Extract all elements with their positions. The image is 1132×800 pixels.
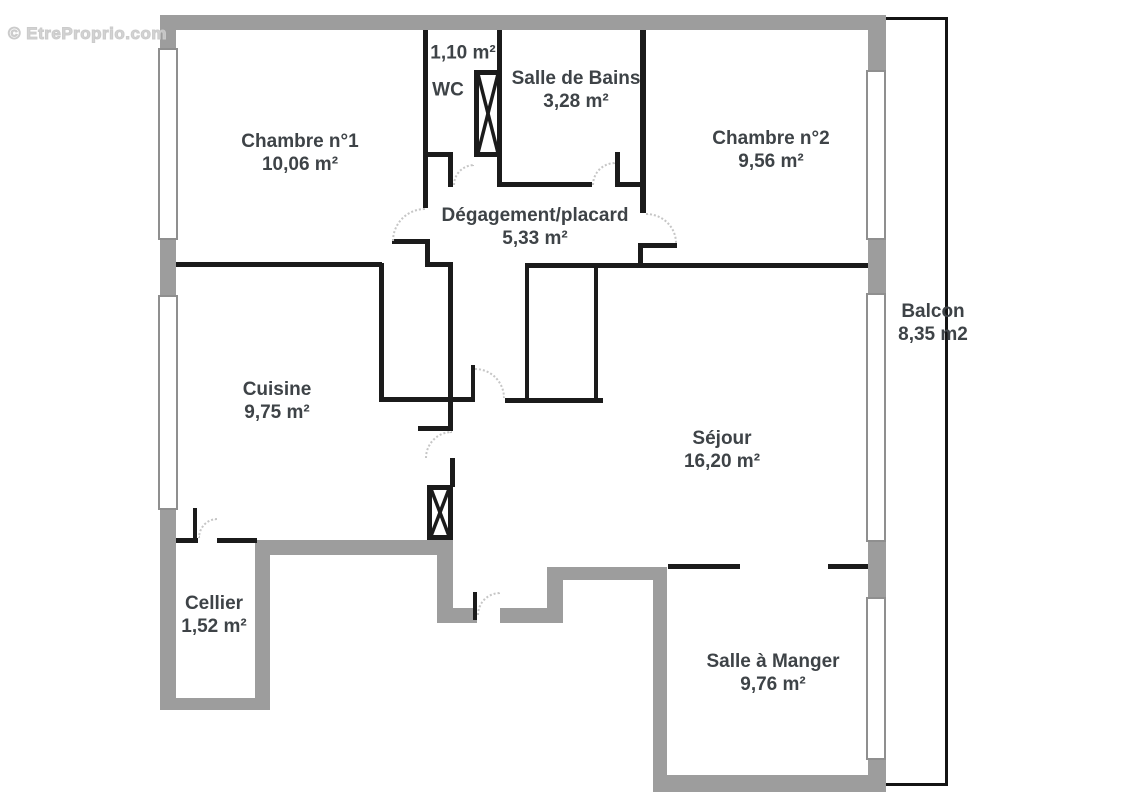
door-arc [475,368,505,398]
room-area: 10,06 m² [241,153,358,176]
wall-segment [668,564,740,569]
wall-segment [868,30,886,70]
wall-segment [525,267,529,398]
room-area: 8,35 m2 [898,323,968,346]
room-label-salle-a-manger: Salle à Manger 9,76 m² [706,650,839,696]
room-area: 9,56 m² [712,150,829,173]
wall-segment [437,608,477,623]
watermark: © EtreProprio.com [8,24,167,44]
room-label-sejour: Séjour 16,20 m² [684,427,760,473]
balcony-outline [945,17,948,786]
wall-segment [638,243,677,248]
room-label-balcon: Balcon 8,35 m2 [898,300,968,346]
room-name: Cuisine [243,378,312,401]
wall-segment [379,263,384,399]
room-name: Séjour [684,427,760,450]
room-area: 1,10 m² [430,42,495,65]
door-arc [453,164,474,185]
ventilation-shaft [474,70,502,157]
room-label-chambre-1: Chambre n°1 10,06 m² [241,130,358,176]
room-label-wc-area: 1,10 m² [430,42,495,65]
wall-segment [473,592,477,620]
window [866,293,886,542]
room-label-chambre-2: Chambre n°2 9,56 m² [712,127,829,173]
wall-segment [160,240,176,295]
window [866,597,886,760]
door-arc [592,162,615,185]
room-label-cuisine: Cuisine 9,75 m² [243,378,312,424]
room-name: Cellier [181,592,246,615]
wall-segment [868,240,886,293]
room-area: 1,52 m² [181,615,246,638]
wall-segment [448,263,453,428]
window [158,48,178,240]
room-area: 9,75 m² [243,401,312,424]
wall-segment [653,578,667,787]
wall-segment [176,262,382,267]
wall-segment [497,182,592,187]
wall-segment [255,540,270,710]
wall-segment [505,398,603,403]
balcony-outline [886,17,948,20]
room-name: Balcon [898,300,968,323]
wall-segment [868,758,886,792]
room-area: 16,20 m² [684,450,760,473]
door-arc [477,592,500,615]
wall-segment [594,267,598,398]
wall-segment [193,508,197,540]
room-name: Dégagement/placard [442,204,629,227]
ventilation-shaft [427,485,453,540]
door-arc [198,518,217,538]
room-label-salle-de-bains: Salle de Bains 3,28 m² [512,67,641,113]
wall-segment [379,397,475,402]
floor-plan: © EtreProprio.com [0,0,1132,800]
window [158,295,178,510]
room-name: Salle à Manger [706,650,839,673]
wall-segment [425,239,430,267]
wall-segment [547,567,563,612]
room-name: WC [432,79,464,102]
wall-segment [450,458,455,487]
room-area: 3,28 m² [512,90,641,113]
room-label-degagement: Dégagement/placard 5,33 m² [442,204,629,250]
wall-segment [828,564,868,569]
wall-segment [525,263,868,268]
wall-segment [217,538,257,543]
room-name: Chambre n°1 [241,130,358,153]
wall-segment [640,30,646,213]
window [866,70,886,240]
room-name: Chambre n°2 [712,127,829,150]
wall-segment [423,30,428,208]
room-area: 9,76 m² [706,673,839,696]
wall-segment [563,567,667,580]
room-area: 5,33 m² [442,227,629,250]
door-arc [392,208,425,241]
room-label-cellier: Cellier 1,52 m² [181,592,246,638]
room-label-wc-name: WC [432,79,464,102]
door-arc [425,431,452,458]
wall-segment [160,698,270,710]
wall-segment [653,775,886,792]
door-arc [646,213,677,243]
wall-segment [868,540,886,597]
wall-segment [160,15,886,30]
balcony-outline [886,783,948,786]
wall-segment [160,508,176,710]
wall-segment [257,540,453,555]
room-name: Salle de Bains [512,67,641,90]
